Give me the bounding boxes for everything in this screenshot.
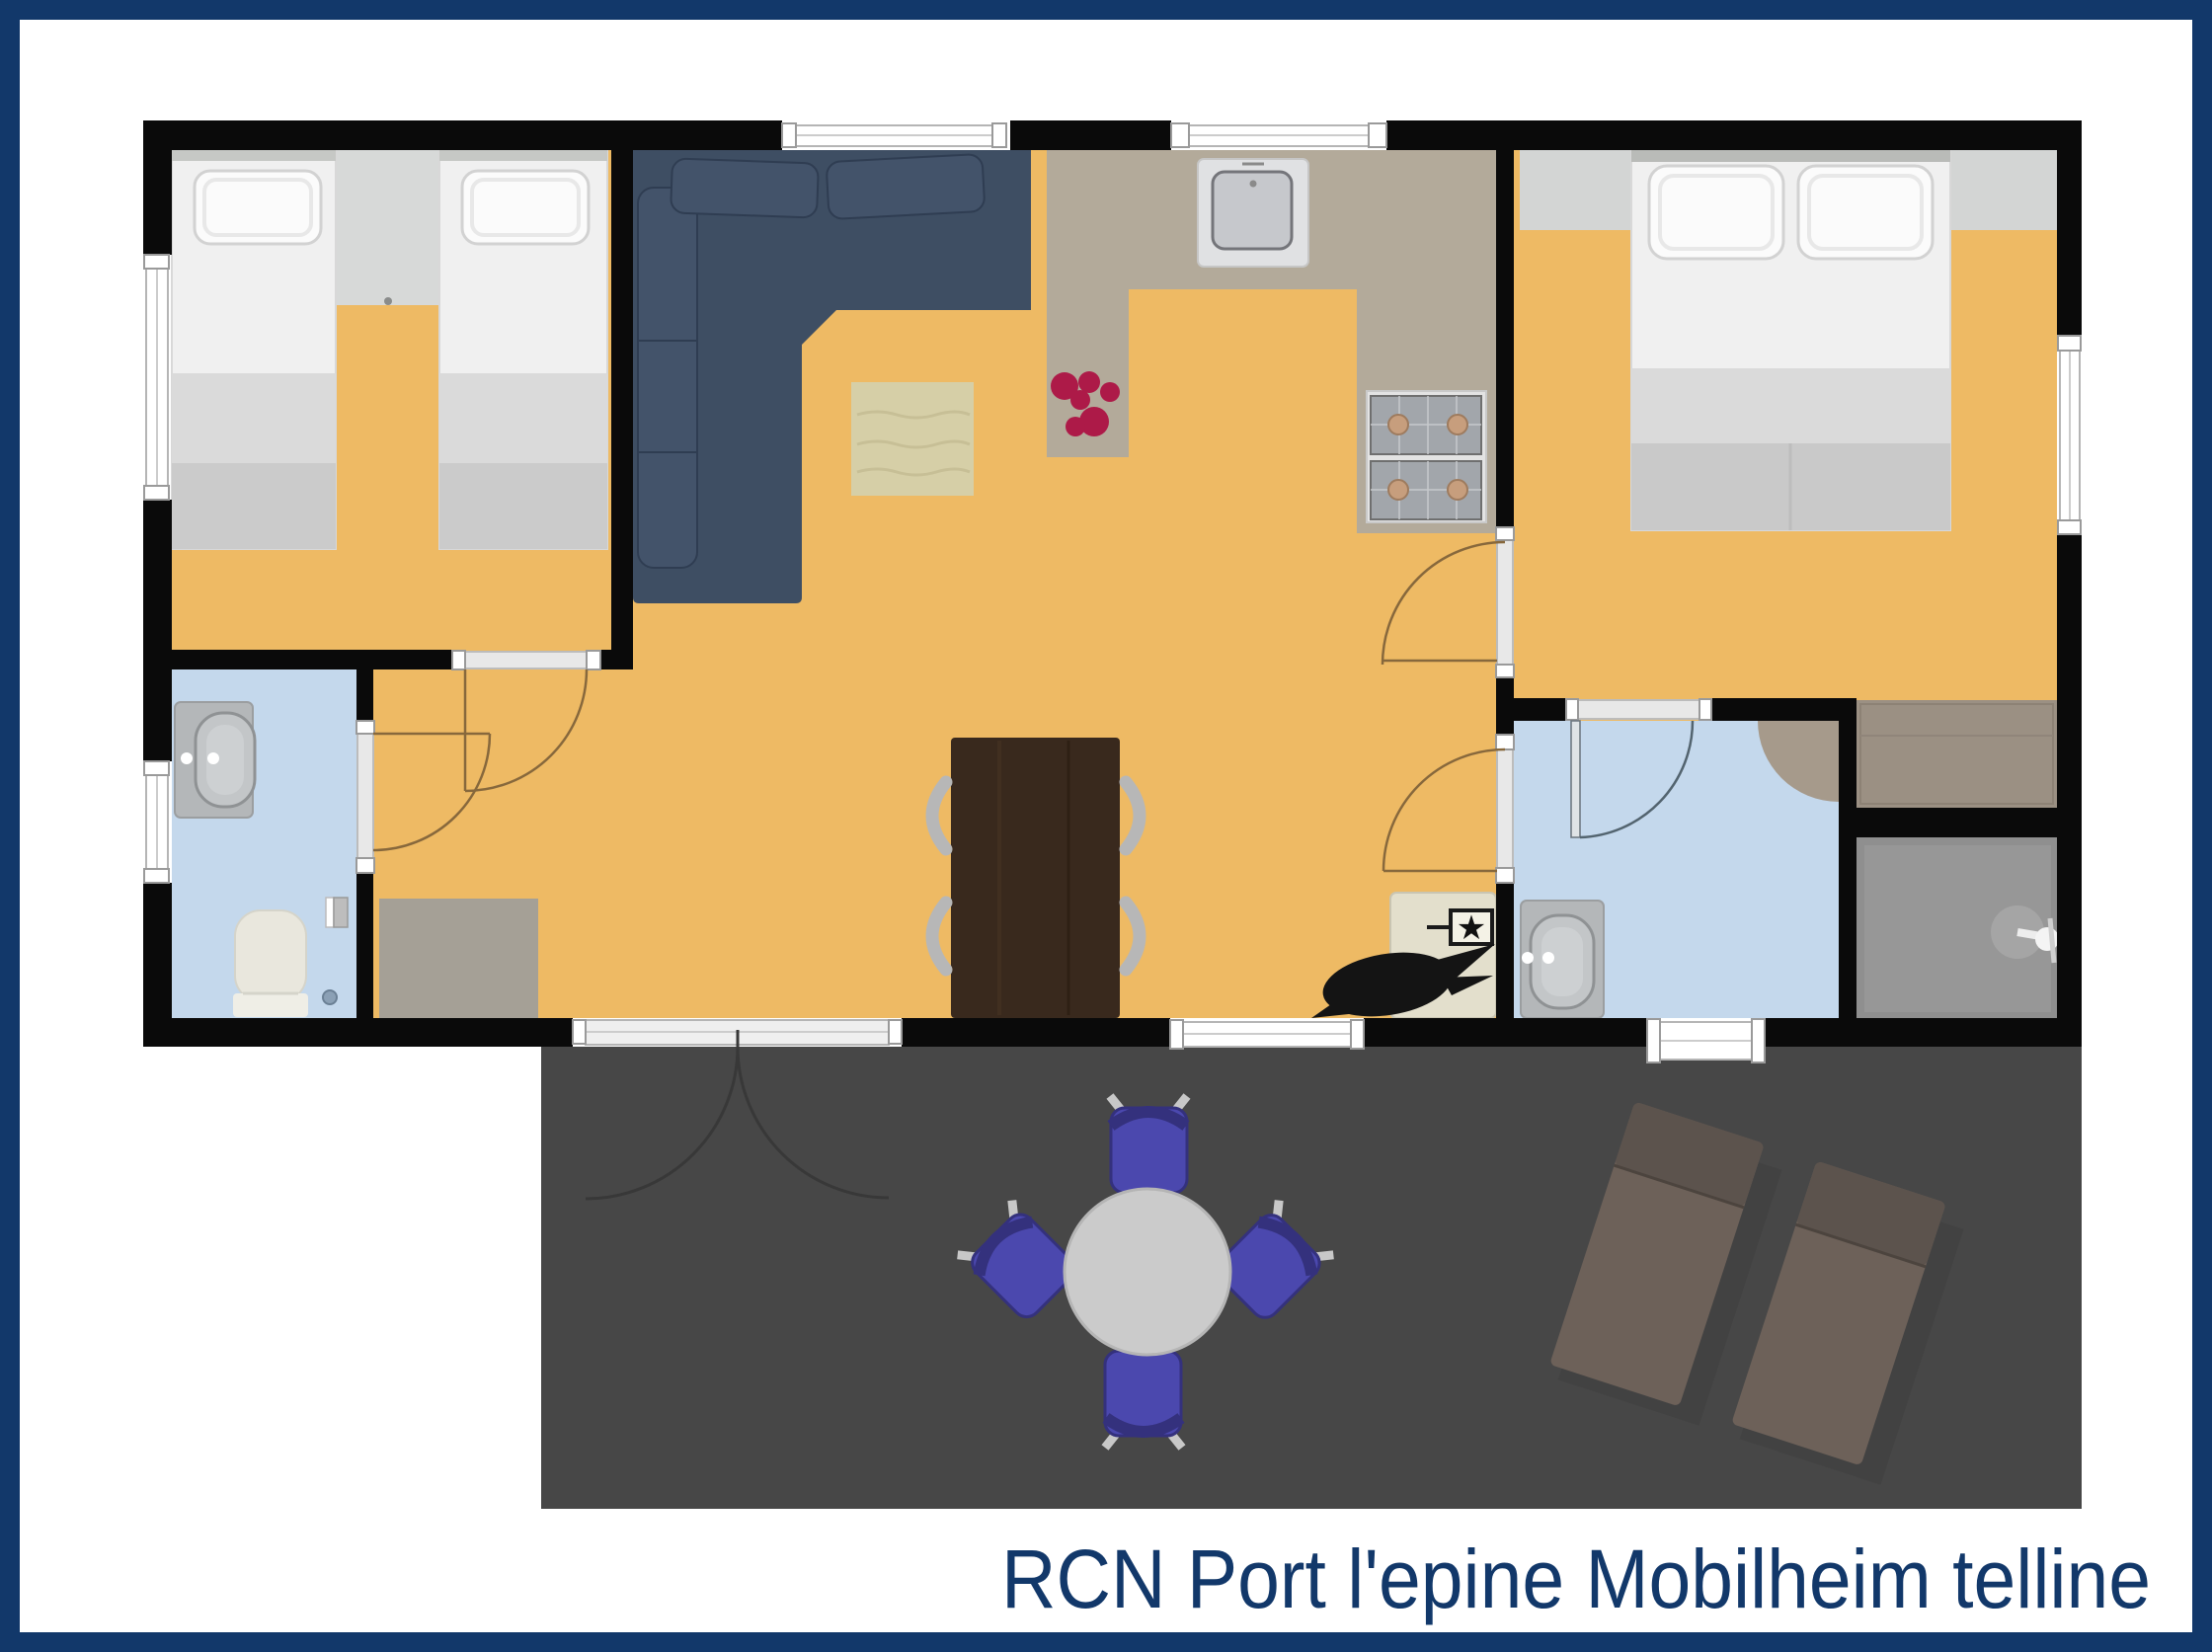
- svg-text:RCN Port l'epine Mobilheim tel: RCN Port l'epine Mobilheim telline: [1001, 1533, 2151, 1625]
- svg-text:★: ★: [1457, 909, 1486, 947]
